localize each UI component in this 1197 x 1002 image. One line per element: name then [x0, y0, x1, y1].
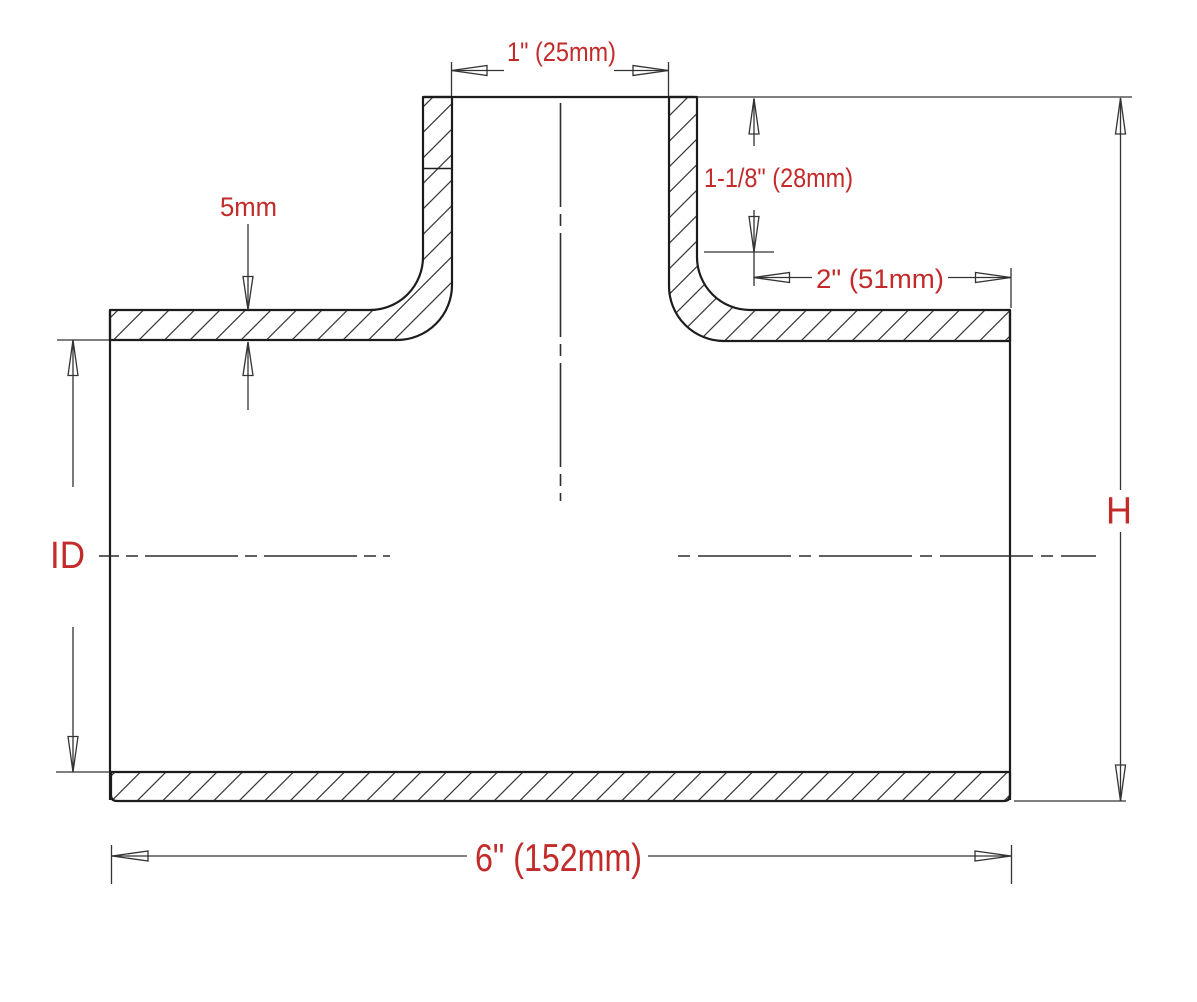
svg-text:5mm: 5mm	[220, 192, 277, 222]
svg-text:H: H	[1106, 491, 1132, 533]
svg-text:1" (25mm): 1" (25mm)	[507, 37, 616, 67]
svg-text:2" (51mm): 2" (51mm)	[816, 264, 944, 294]
svg-text:1-1/8" (28mm): 1-1/8" (28mm)	[704, 163, 853, 193]
svg-text:ID: ID	[50, 535, 85, 577]
svg-text:6" (152mm): 6" (152mm)	[475, 837, 642, 880]
